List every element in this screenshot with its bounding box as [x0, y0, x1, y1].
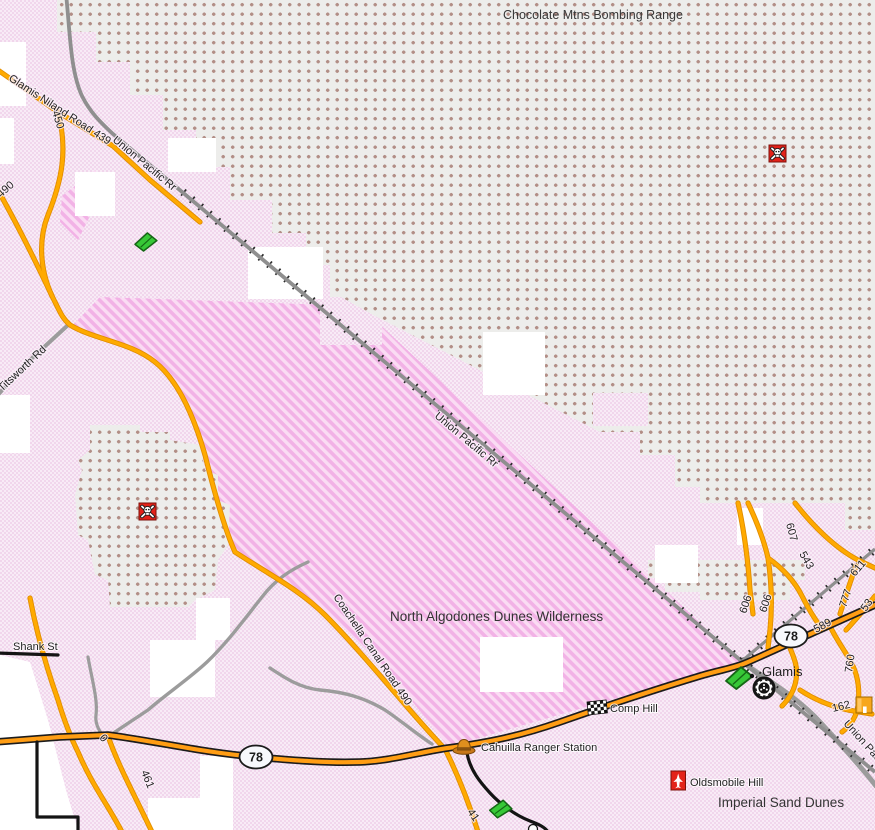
skull-danger-icon-north[interactable]: [769, 145, 786, 162]
comp-hill-label: Comp Hill: [610, 703, 658, 715]
oldsmobile-label: Oldsmobile Hill: [690, 777, 763, 789]
cahuilla-label: Cahuilla Ranger Station: [481, 742, 597, 754]
map-canvas[interactable]: Chocolate Mtns Bombing Range North Algod…: [0, 0, 875, 830]
svg-text:760: 760: [843, 654, 857, 674]
wilderness-label: North Algodones Dunes Wilderness: [390, 609, 603, 624]
partial-waypoint-circle[interactable]: [529, 825, 538, 830]
shank-st-label: Shank St: [13, 641, 58, 653]
shank-street: [0, 653, 58, 655]
skull-danger-icon-west[interactable]: [139, 503, 156, 520]
store-building-icon[interactable]: [856, 697, 872, 713]
dune-hill-icon-oldsmobile[interactable]: [671, 771, 686, 790]
glamis-town-label: Glamis: [762, 664, 803, 679]
bombing-range-label: Chocolate Mtns Bombing Range: [503, 8, 683, 22]
wheel-icon-glamis[interactable]: [754, 678, 774, 698]
checkered-flag-icon[interactable]: [587, 700, 607, 715]
imperial-dunes-label: Imperial Sand Dunes: [718, 795, 844, 810]
route-78-shield-east: 78: [775, 625, 808, 648]
range-clearing: [593, 393, 648, 426]
svg-text:78: 78: [784, 630, 798, 644]
route-78-shield-west: 78: [240, 746, 273, 769]
svg-text:78: 78: [249, 751, 263, 765]
waypoint-dot[interactable]: [750, 674, 754, 678]
